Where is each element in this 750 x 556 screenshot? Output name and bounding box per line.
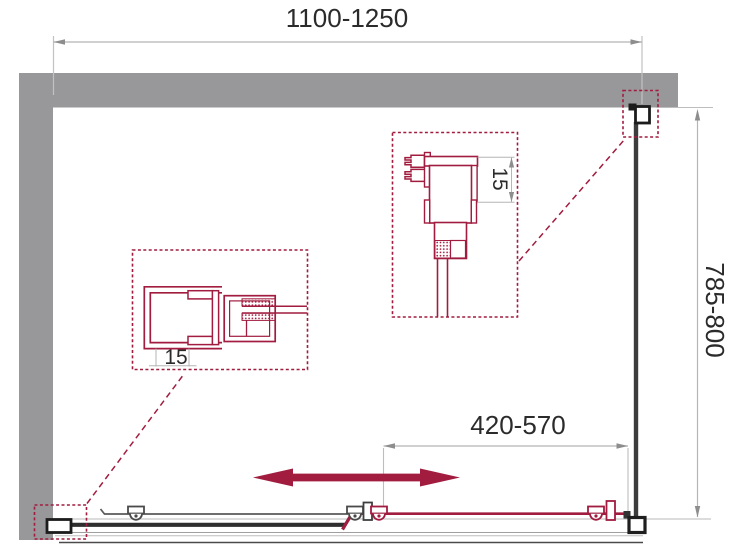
corner-connector xyxy=(629,518,645,533)
dimension-drawing: 1100-1250 785-800 420-570 15 15 xyxy=(0,0,750,556)
depth-dimension-label: 785-800 xyxy=(702,240,728,380)
wall-top xyxy=(19,73,678,108)
width-dimension-label: 1100-1250 xyxy=(247,5,447,31)
wall-profile-bottom-left xyxy=(47,520,71,533)
drawing-linework xyxy=(0,0,750,556)
slide-direction-arrow xyxy=(253,469,460,487)
door-rollers xyxy=(128,501,615,520)
wall-left xyxy=(19,73,53,540)
callout-leader-lines xyxy=(87,140,625,504)
wall-profile-top-right xyxy=(629,104,650,124)
left-detail-dimension-label: 15 xyxy=(146,347,206,368)
glass-side-panel xyxy=(634,122,638,518)
top-detail-dimension-label: 15 xyxy=(488,149,510,209)
door-opening-dimension-label: 420-570 xyxy=(418,412,618,438)
